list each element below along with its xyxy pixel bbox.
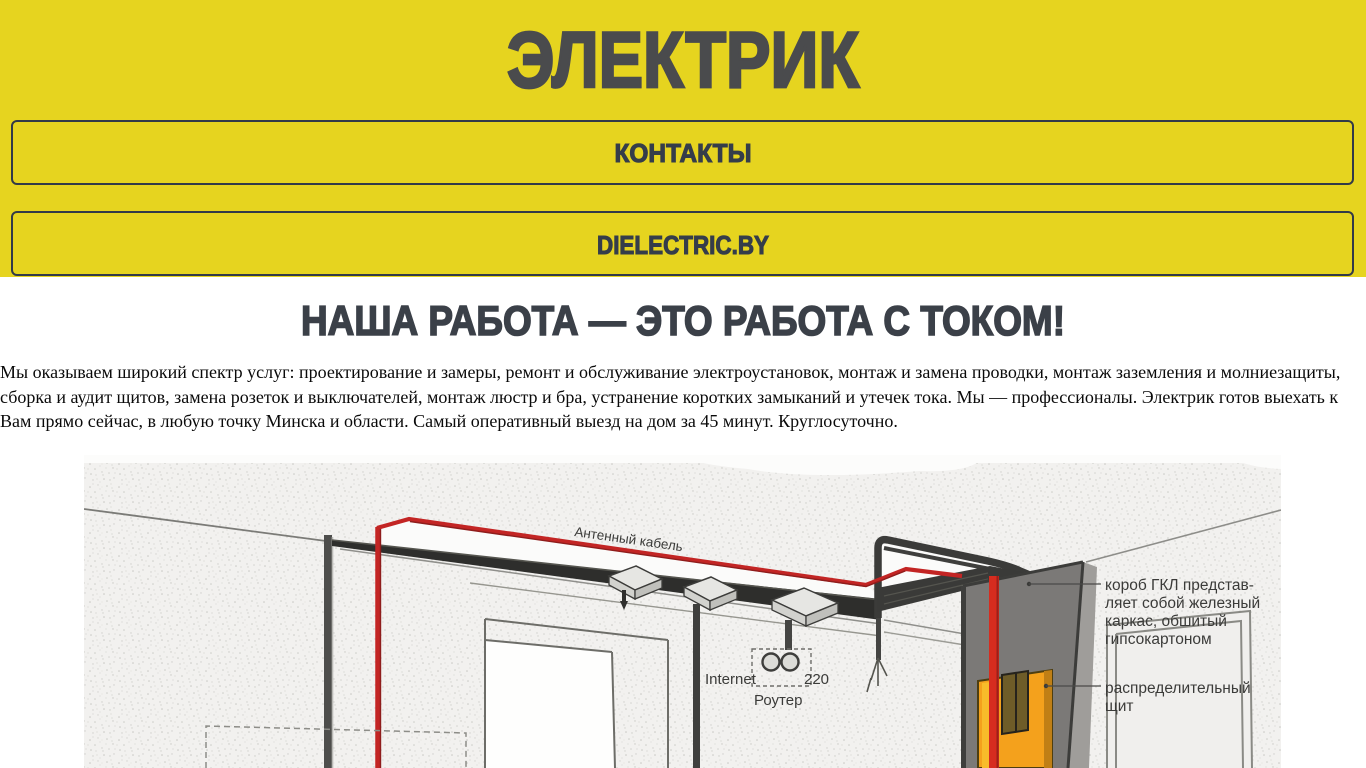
- svg-text:DIELECTRIC.BY: DIELECTRIC.BY: [597, 230, 769, 260]
- svg-text:распределительный: распределительный: [1105, 680, 1251, 697]
- svg-text:щит: щит: [1105, 698, 1134, 715]
- svg-text:ЭЛЕКТРИК: ЭЛЕКТРИК: [507, 15, 860, 104]
- svg-text:220: 220: [804, 671, 829, 688]
- svg-text:короб ГКЛ представ-: короб ГКЛ представ-: [1105, 577, 1254, 594]
- svg-text:Роутер: Роутер: [754, 692, 802, 709]
- svg-text:КОНТАКТЫ: КОНТАКТЫ: [615, 138, 752, 168]
- svg-text:ляет собой железный: ляет собой железный: [1105, 595, 1260, 612]
- svg-text:гипсокартоном: гипсокартоном: [1105, 631, 1212, 648]
- svg-text:НАША РАБОТА — ЭТО РАБОТА С ТОК: НАША РАБОТА — ЭТО РАБОТА С ТОКОМ!: [301, 297, 1065, 344]
- svg-text:каркас, обшитый: каркас, обшитый: [1105, 613, 1227, 630]
- svg-text:Internet: Internet: [705, 671, 757, 688]
